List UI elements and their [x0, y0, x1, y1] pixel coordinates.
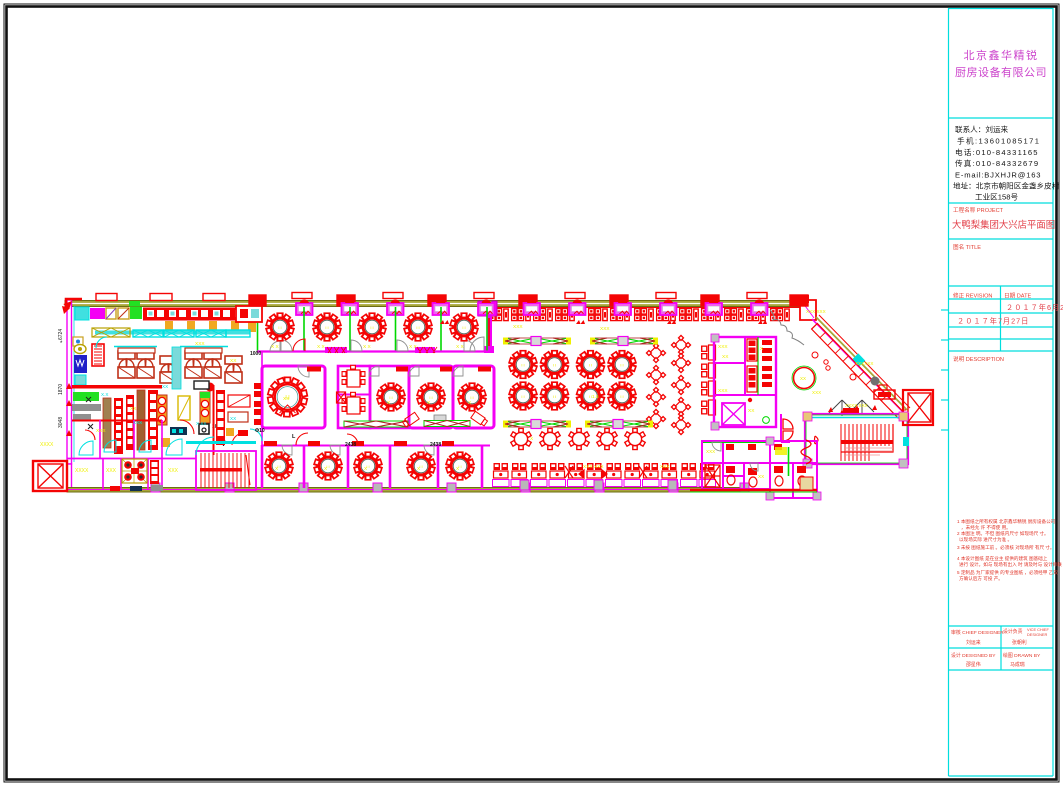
svg-text:X X: X X [456, 344, 465, 350]
svg-text:修正 REVISION: 修正 REVISION [953, 292, 992, 300]
svg-text:XXX: XXX [133, 420, 142, 425]
svg-text:日期 DATE: 日期 DATE [1004, 293, 1032, 300]
svg-text:2438: 2438 [430, 442, 441, 448]
svg-text:北京鑫华精锐: 北京鑫华精锐 [964, 48, 1039, 62]
svg-text:XX: XX [230, 416, 236, 421]
svg-text:XXX: XXX [106, 468, 117, 474]
svg-text:工业区158号: 工业区158号 [975, 192, 1018, 202]
svg-text:XXX: XXX [706, 449, 715, 454]
svg-text:1 本图纸之所有权属 北京鑫华精锐 厨房设备公司: 1 本图纸之所有权属 北京鑫华精锐 厨房设备公司 [957, 518, 1056, 525]
svg-text:DESIGNER: DESIGNER [1027, 632, 1048, 637]
svg-text:XX: XX [748, 408, 755, 414]
svg-text:XXX XXX: XXX XXX [583, 464, 604, 470]
svg-text:XX: XX [162, 384, 168, 389]
svg-text:1000: 1000 [250, 351, 261, 357]
svg-text:XXX: XXX [718, 388, 728, 394]
svg-text:XXXX: XXXX [75, 468, 89, 474]
svg-text:L: L [292, 434, 296, 440]
svg-text:工程名称 PROJECT: 工程名称 PROJECT [953, 206, 1004, 214]
svg-text:Φ10: Φ10 [255, 428, 265, 434]
svg-text:3048: 3048 [58, 417, 64, 428]
svg-text:进行 设计。如与 现场有出入 时 请及时与 设计师联 系。: 进行 设计。如与 现场有出入 时 请及时与 设计师联 系。 [959, 561, 1063, 568]
svg-text:X.X: X.X [101, 392, 108, 397]
svg-text:XXX: XXX [195, 341, 205, 347]
svg-text:XX: XX [283, 396, 290, 402]
svg-text:X XX: X XX [196, 421, 206, 426]
svg-text:电话:010-84331165: 电话:010-84331165 [955, 147, 1039, 157]
svg-text:X: X [530, 436, 534, 442]
svg-text:传真:010-84332679: 传真:010-84332679 [955, 158, 1039, 168]
svg-text:以现场实际 进尺寸为准 。: 以现场实际 进尺寸为准 。 [959, 536, 1012, 543]
svg-text:马成瑞: 马成瑞 [1010, 661, 1025, 668]
svg-text:刘运来: 刘运来 [966, 639, 981, 646]
svg-text:方确认后方 可投 产。: 方确认后方 可投 产。 [959, 575, 1003, 582]
svg-text:X X: X X [271, 344, 280, 350]
svg-text:XXXXXX: XXXXXX [855, 361, 873, 366]
svg-text:4 本设计图纸 是在业主 提供的建筑 图基础上: 4 本设计图纸 是在业主 提供的建筑 图基础上 [957, 555, 1048, 562]
svg-text:XXX: XXX [660, 464, 670, 470]
svg-text:E-mail:BJXHJR@163: E-mail:BJXHJR@163 [955, 171, 1041, 180]
svg-text:XXX: XXX [812, 390, 821, 395]
svg-text:地址：北京市朝阳区金盏乡皮村: 地址：北京市朝阳区金盏乡皮村 [953, 181, 1060, 191]
svg-text:厨房设备有限公司: 厨房设备有限公司 [955, 65, 1047, 79]
svg-text:5 定制品 为厂家提供 的专业图纸 ，必须经甲 乙双: 5 定制品 为厂家提供 的专业图纸 ，必须经甲 乙双 [957, 569, 1058, 576]
svg-text:２０１７年7月27日: ２０１７年7月27日 [957, 317, 1029, 326]
svg-text:XX: XX [722, 354, 729, 360]
svg-text:1.5: 1.5 [592, 394, 599, 400]
svg-text:2438: 2438 [345, 442, 356, 448]
svg-text:XXX: XXX [718, 344, 728, 350]
svg-text:6724: 6724 [58, 329, 64, 340]
svg-text:1870: 1870 [58, 384, 64, 395]
svg-text:XX: XX [758, 474, 764, 479]
svg-text:X X: X X [409, 344, 418, 350]
svg-text:设计 DESIGNED BY: 设计 DESIGNED BY [951, 652, 996, 659]
svg-text:设计负责: 设计负责 [1003, 628, 1023, 635]
svg-text:XX: XX [230, 358, 237, 364]
svg-text:邵星伟: 邵星伟 [966, 661, 981, 668]
svg-text:2 本图注 明。不但 图纸内尺寸 如现场尺 寸。: 2 本图注 明。不但 图纸内尺寸 如现场尺 寸。 [957, 530, 1049, 537]
svg-text:图名 TITLE: 图名 TITLE [953, 243, 981, 251]
svg-text:XX: XX [800, 376, 806, 381]
svg-text:XXX XXX: XXX XXX [806, 309, 826, 314]
svg-text:XXX: XXX [513, 324, 523, 330]
svg-text:X X: X X [317, 344, 326, 350]
svg-text:XXXX: XXXX [40, 442, 54, 448]
svg-text:张朝利: 张朝利 [1012, 639, 1027, 646]
svg-text:２０１７年6月23日: ２０１７年6月23日 [1006, 303, 1063, 312]
svg-text:手机:13601085171: 手机:13601085171 [957, 136, 1040, 146]
svg-text:3 未按 图纸施工前 。必须核 对现场所 有尺 寸。: 3 未按 图纸施工前 。必须核 对现场所 有尺 寸。 [957, 544, 1055, 551]
svg-text:联系人：刘运来: 联系人：刘运来 [955, 124, 1009, 134]
svg-text:绘图 DRAWN BY: 绘图 DRAWN BY [1003, 652, 1041, 659]
svg-text:说明 DESCRIPTION: 说明 DESCRIPTION [953, 355, 1004, 363]
svg-text:XXX: XXX [168, 468, 179, 474]
svg-text:审核 CHIEF DESIGNER: 审核 CHIEF DESIGNER [951, 629, 1004, 636]
svg-text:XXXX XXX: XXXX XXX [845, 403, 868, 408]
svg-text:X X: X X [363, 344, 372, 350]
svg-text:XXX: XXX [96, 428, 106, 434]
svg-text:，未经允 许 不得使 用。: ，未经允 许 不得使 用。 [961, 524, 1011, 531]
svg-text:大鸭梨集团大兴店平面图: 大鸭梨集团大兴店平面图 [952, 219, 1055, 230]
svg-text:*: * [60, 341, 63, 347]
svg-text:XXX: XXX [600, 326, 610, 332]
svg-text:XX: XX [130, 406, 137, 412]
